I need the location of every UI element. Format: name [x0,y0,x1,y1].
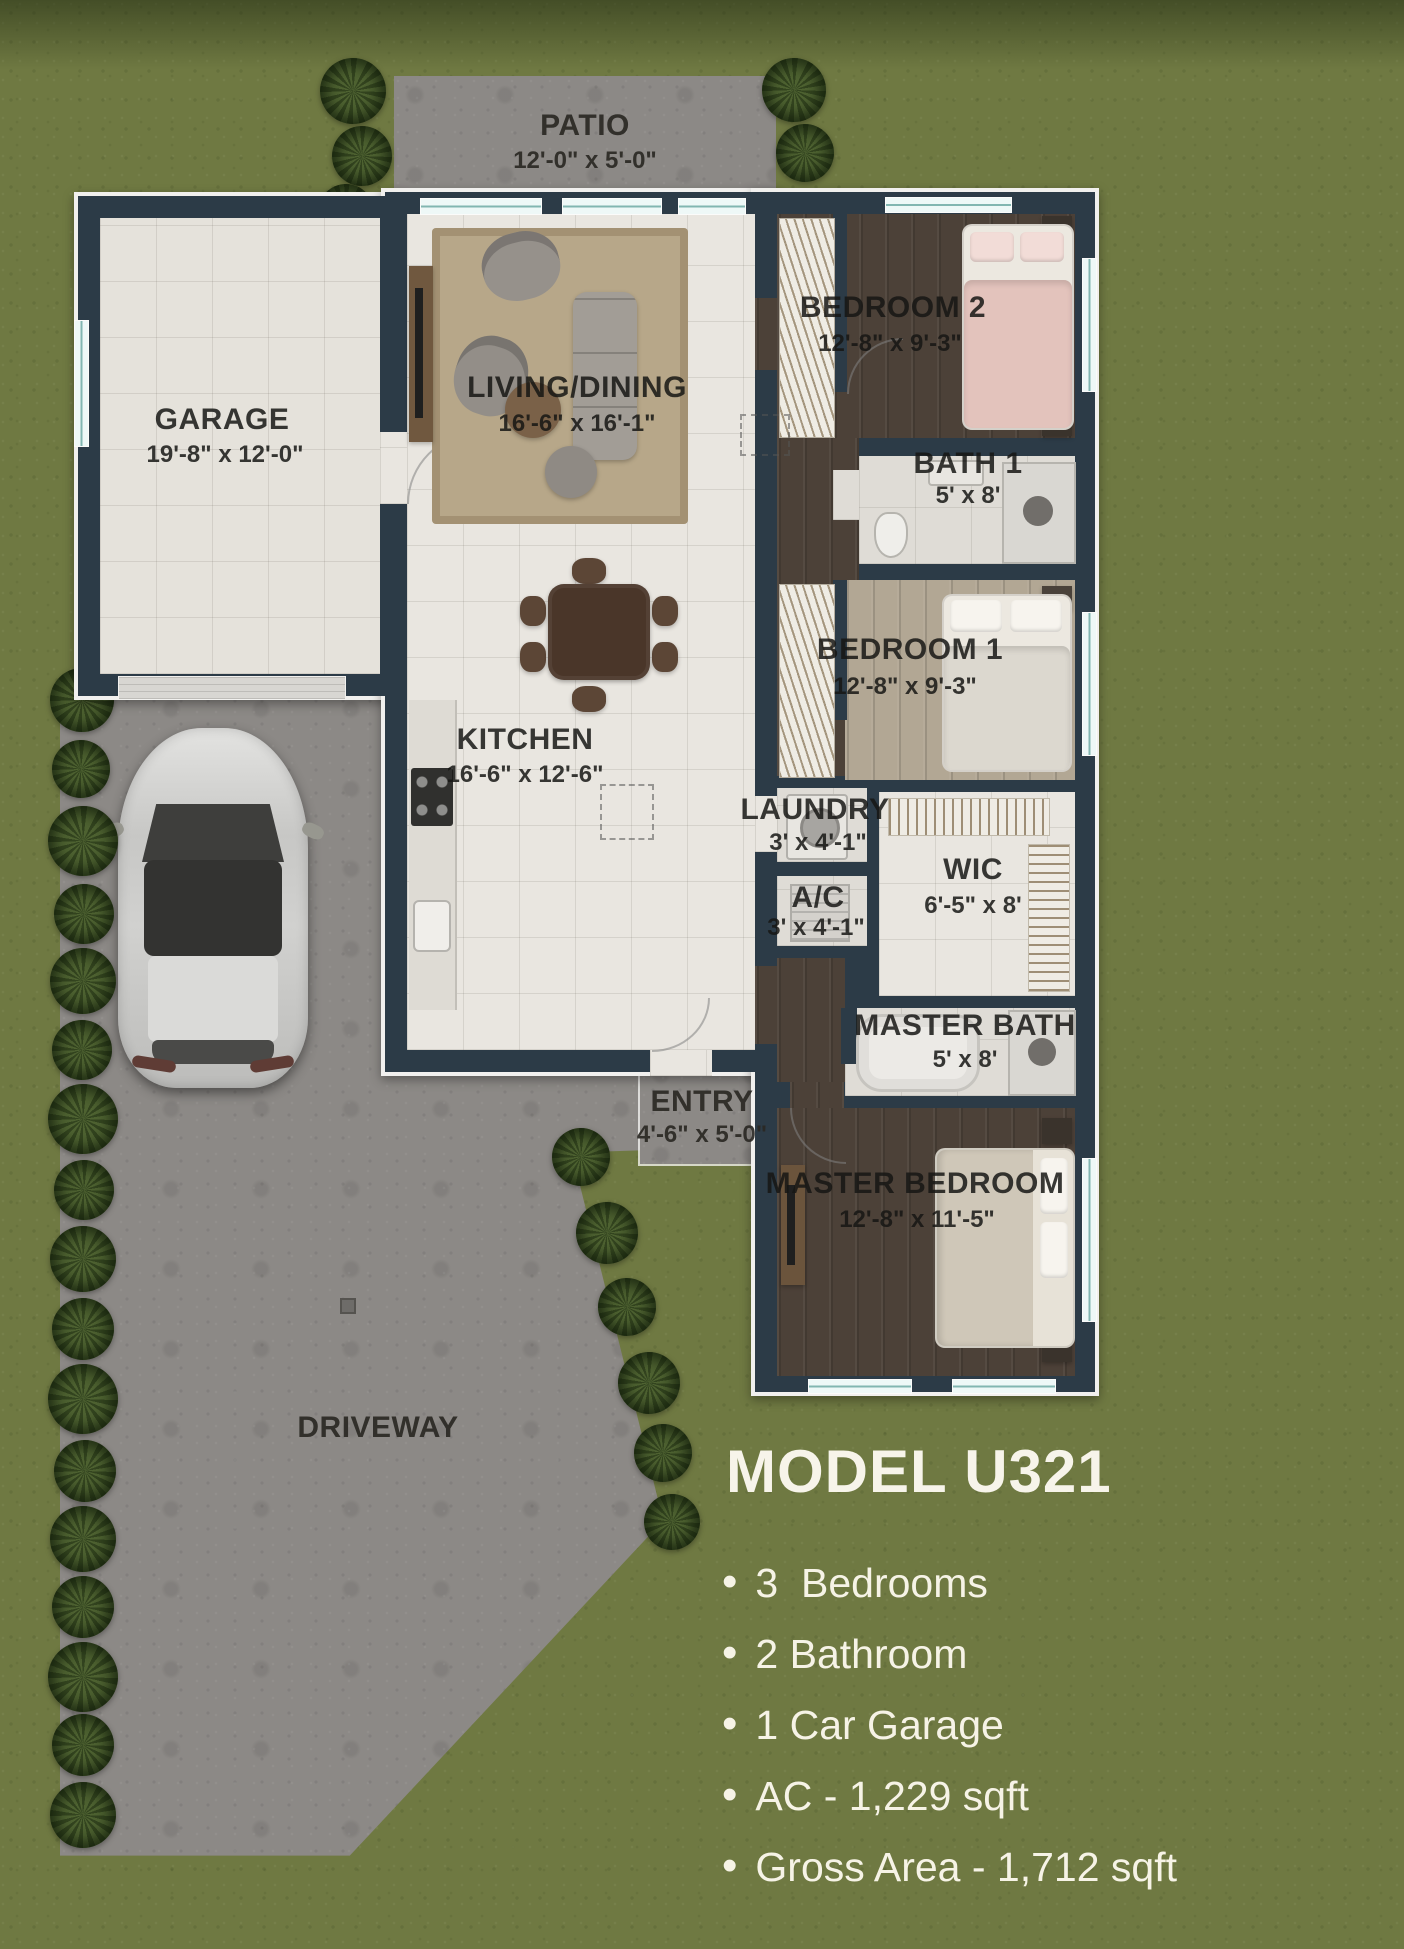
feature-item-bathrooms: • 2 Bathroom [722,1619,1177,1690]
bedroom2-dims: 12'-8" x 9'-3" [818,330,962,358]
laundry-dims: 3' x 4'-1" [769,829,867,857]
bath1-label: BATH 1 [913,447,1022,481]
wic-rack-right [1028,844,1070,992]
master-bedroom-label: MASTER BEDROOM [766,1167,1065,1201]
kitchen-label: KITCHEN [457,723,594,757]
hall-closet-bedroom1 [779,584,835,778]
bush [48,1084,118,1154]
patio-slider-door [562,198,662,215]
pillow [970,232,1014,262]
bedroom2-label: BEDROOM 2 [800,291,986,325]
kitchen-sink [413,900,451,952]
attic-access-dashed [740,414,790,456]
bush [54,884,114,944]
garage-door [118,676,346,700]
hall-closet-bedroom2 [779,218,835,438]
kitchen-counter [409,700,457,1010]
floor-plan-canvas: PATIO 12'-0" x 5'-0" GARAGE 19'-8" x 12'… [0,0,1404,1949]
bullet-icon: • [722,1844,737,1888]
living-hall-door-gap [755,298,777,370]
bush [552,1128,610,1186]
front-door-gap [650,1050,712,1076]
living-window-top-2 [678,198,746,215]
entry-dims: 4'-6" x 5'-0" [637,1121,767,1149]
bedroom2-window-top [885,197,1012,213]
master-window-bottom-2 [952,1379,1056,1394]
dining-chair [572,558,606,584]
car-roof-glass [144,860,282,956]
bush [332,126,392,186]
garage-dims: 19'-8" x 12'-0" [147,441,304,469]
feature-item-gross-area: • Gross Area - 1,712 sqft [722,1832,1177,1903]
bullet-icon: • [722,1773,737,1817]
wic-label: WIC [943,853,1003,887]
dining-chair [652,596,678,626]
bedroom1-label: BEDROOM 1 [817,633,1003,667]
ac-label: A/C [791,881,844,915]
bush [48,1642,118,1712]
pouf [545,446,597,498]
bush [50,1782,116,1848]
feature-list: • 3 Bedrooms • 2 Bathroom • 1 Car Garage… [722,1548,1177,1903]
garage-window-left [74,320,89,447]
bush [644,1494,700,1550]
master-bath-dims: 5' x 8' [933,1046,998,1074]
entry-label: ENTRY [650,1085,753,1119]
bush [52,1298,114,1360]
bush [54,1160,114,1220]
bush [50,1226,116,1292]
dining-table [548,584,650,680]
bush [320,58,386,124]
car-windshield [142,804,284,862]
dining-chair [520,596,546,626]
master-bath-label: MASTER BATH [854,1009,1076,1043]
bath1-dims: 5' x 8' [936,482,1001,510]
kitchen-dims: 16'-6" x 12'-6" [447,761,604,789]
bush [50,948,116,1014]
tv [415,288,423,418]
bullet-icon: • [722,1560,737,1604]
patio-dims: 12'-0" x 5'-0" [513,147,657,175]
bush [776,124,834,182]
garage-living-door-gap [380,432,407,504]
bath1-door-gap [833,470,859,520]
pillow [1010,600,1062,632]
corridor-floor [777,958,845,1082]
model-title: MODEL U321 [726,1437,1112,1506]
bush [576,1202,638,1264]
dining-chair [520,642,546,672]
laundry-label: LAUNDRY [740,793,889,827]
bath1-toilet [874,512,908,558]
driveway-label: DRIVEWAY [297,1411,458,1445]
car [118,728,308,1088]
bedroom1-window-right [1082,612,1097,756]
car-roof [148,956,278,1042]
bush [48,806,118,876]
wic-dims: 6'-5" x 8' [924,892,1022,920]
bedroom2-window-right [1082,258,1097,392]
feature-item-bedrooms: • 3 Bedrooms [722,1548,1177,1619]
feature-text: 2 Bathroom [755,1634,967,1675]
feature-text: 1 Car Garage [755,1705,1003,1746]
kitchen-corridor-door-gap [755,966,777,1044]
master-bedroom-dims: 12'-8" x 11'-5" [839,1206,995,1234]
pillow [1040,1222,1068,1278]
feature-text: 3 Bedrooms [755,1563,987,1604]
pillow [1020,232,1064,262]
garage-label: GARAGE [155,403,290,437]
master-window-bottom-1 [808,1379,912,1394]
bush [762,58,826,122]
bush [618,1352,680,1414]
patio-label: PATIO [540,109,630,143]
wic-rack-top [888,798,1050,836]
bush [634,1424,692,1482]
bath1-shower-drain [1023,496,1053,526]
living-dining-dims: 16'-6" x 16'-1" [499,410,656,438]
dining-chair [652,642,678,672]
bush [50,1506,116,1572]
bullet-icon: • [722,1702,737,1746]
feature-text: Gross Area - 1,712 sqft [755,1847,1177,1888]
bush [598,1278,656,1336]
feature-text: AC - 1,229 sqft [755,1776,1028,1817]
bush [52,1020,112,1080]
bush [54,1440,116,1502]
living-window-top-1 [420,198,542,215]
ceiling-feature-dashed [600,784,654,840]
feature-item-garage: • 1 Car Garage [722,1690,1177,1761]
master-window-right [1082,1158,1097,1322]
pillow [950,600,1002,632]
feature-item-ac-area: • AC - 1,229 sqft [722,1761,1177,1832]
bullet-icon: • [722,1631,737,1675]
living-dining-label: LIVING/DINING [467,371,687,405]
dining-chair [572,686,606,712]
nightstand [1042,1118,1072,1144]
bedroom1-dims: 12'-8" x 9'-3" [833,673,977,701]
driveway-drain [340,1298,356,1314]
ac-dims: 3' x 4'-1" [767,914,865,942]
bush [52,1576,114,1638]
bush [48,1364,118,1434]
bush [52,1714,114,1776]
bush [52,740,110,798]
corridor-master-door-gap [790,1082,844,1108]
